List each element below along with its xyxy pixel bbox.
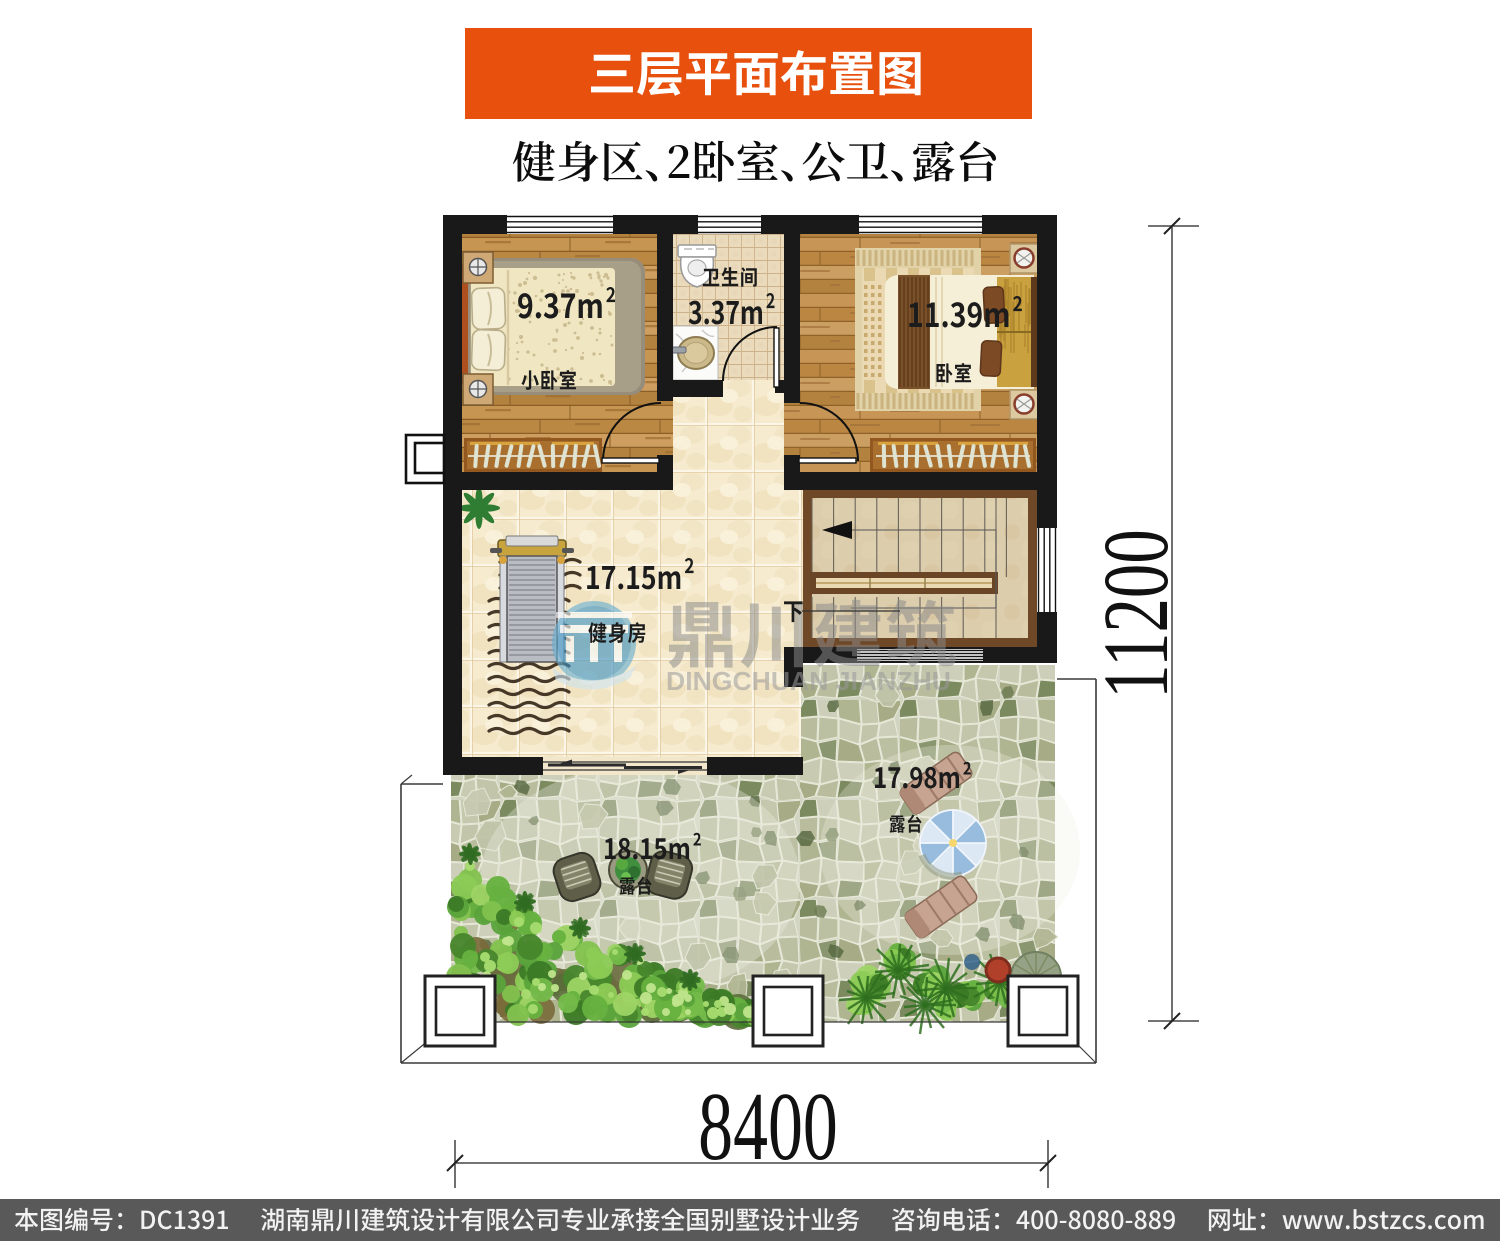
svg-text:11200: 11200	[1084, 529, 1187, 698]
svg-text:8400: 8400	[698, 1074, 838, 1181]
svg-text:DINGCHUAN JIANZHU: DINGCHUAN JIANZHU	[666, 666, 951, 696]
